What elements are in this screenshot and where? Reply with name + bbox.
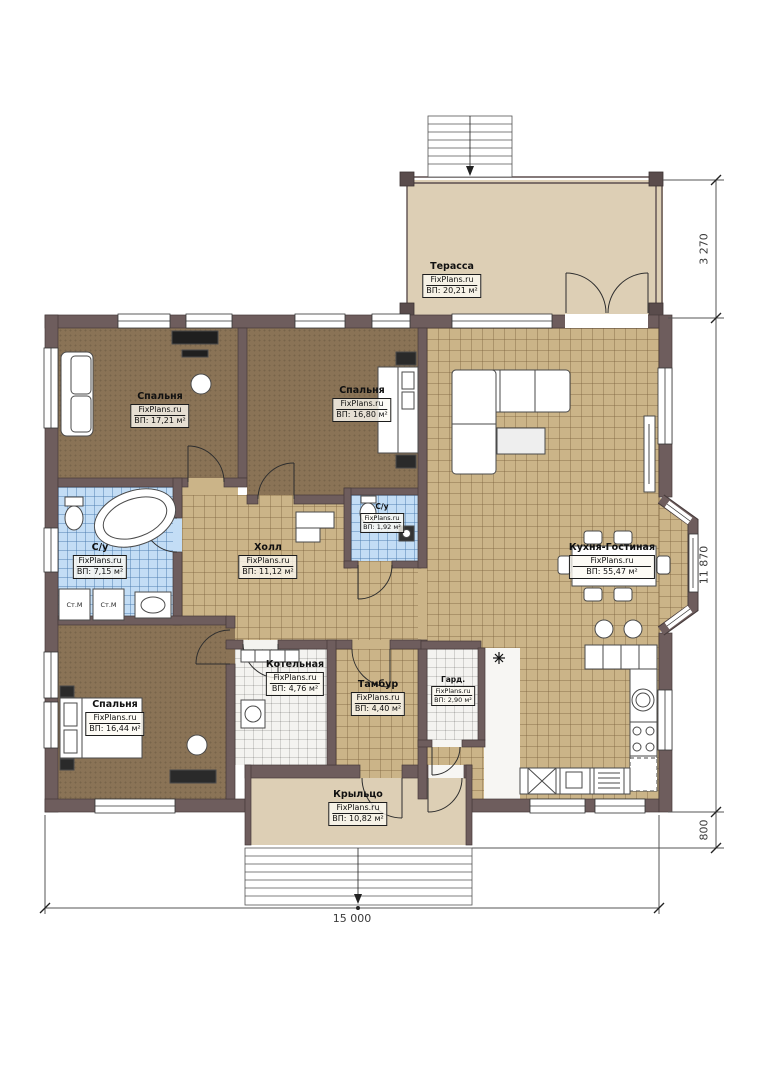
toilet-bathroom	[65, 497, 83, 530]
room-area: ВП: 55,47 м²	[573, 566, 651, 577]
kitchen-counter-top	[585, 645, 657, 669]
dimension-porch-height: 800	[698, 820, 711, 841]
tv-cabinet-living	[644, 416, 655, 492]
hall-cabinet	[296, 512, 334, 542]
snowflake-icon	[493, 652, 505, 664]
bar-stool	[595, 620, 613, 638]
chair-bedroom-bl	[187, 735, 207, 755]
boiler-unit	[241, 700, 265, 728]
nightstand	[60, 686, 74, 697]
porch-stairs	[245, 848, 472, 905]
room-area: ВП: 4,76 м²	[270, 683, 320, 694]
shelf-tl	[182, 350, 208, 357]
room-area: ВП: 7,15 м²	[77, 566, 123, 577]
room-label-kitchen-living: Кухня-Гостиная FixPlans.ru ВП: 55,47 м²	[569, 543, 655, 579]
terrace-stairs	[428, 116, 512, 177]
room-label-bedroom-bl: Спальня FixPlans.ru ВП: 16,44 м²	[85, 700, 144, 736]
room-title: Спальня	[130, 392, 189, 403]
room-title: Холл	[238, 543, 297, 554]
kitchen-counter-right	[630, 669, 657, 791]
dimension-total-width: 15 000	[333, 912, 372, 925]
room-title: С/у	[73, 543, 127, 554]
room-title: Крыльцо	[328, 790, 387, 801]
room-label-hall: Холл FixPlans.ru ВП: 11,12 м²	[238, 543, 297, 579]
nightstand	[60, 759, 74, 770]
washing-machine-label: Ст.М	[93, 589, 124, 620]
nightstand	[396, 352, 416, 365]
room-title: Кухня-Гостиная	[569, 543, 655, 554]
room-area: ВП: 20,21 м²	[426, 285, 477, 296]
brand-label: FixPlans.ru	[77, 556, 123, 566]
room-label-terrace: Терасса FixPlans.ru ВП: 20,21 м²	[422, 262, 481, 298]
dimension-terrace-height: 3 270	[698, 233, 711, 265]
brand-label: FixPlans.ru	[332, 803, 383, 813]
cabinet-sink	[560, 768, 590, 794]
room-title: Котельная	[266, 660, 324, 671]
nightstand	[396, 455, 416, 468]
room-area: ВП: 1,92 м²	[363, 522, 401, 531]
dresser-bl	[170, 770, 216, 783]
brand-label: FixPlans.ru	[355, 693, 401, 703]
room-label-bedroom-tm: Спальня FixPlans.ru ВП: 16,80 м²	[332, 386, 391, 422]
room-title: Спальня	[85, 700, 144, 711]
washing-machine-label: Ст.М	[59, 589, 90, 620]
chair-bedroom-tl	[191, 374, 211, 394]
sink-bathroom	[135, 592, 171, 618]
room-title: Терасса	[422, 262, 481, 273]
room-area: ВП: 2,90 м²	[434, 695, 472, 704]
dishwasher	[594, 768, 624, 794]
bar-stool	[624, 620, 642, 638]
brand-label: FixPlans.ru	[363, 514, 401, 522]
room-title: Гард.	[431, 676, 475, 685]
room-area: ВП: 10,82 м²	[332, 813, 383, 824]
room-area: ВП: 17,21 м²	[134, 415, 185, 426]
room-area: ВП: 11,12 м²	[242, 566, 293, 577]
kitchen-counter-bottom	[520, 768, 630, 794]
sofa-living	[452, 370, 570, 474]
room-label-porch: Крыльцо FixPlans.ru ВП: 10,82 м²	[328, 790, 387, 826]
room-title: С/у	[360, 503, 404, 512]
room-label-bedroom-tl: Спальня FixPlans.ru ВП: 17,21 м²	[130, 392, 189, 428]
room-area: ВП: 4,40 м²	[355, 703, 401, 714]
coffee-table	[497, 428, 545, 454]
sofa-bedroom-tl	[61, 352, 93, 436]
dimension-house-height: 11 870	[698, 546, 711, 585]
tv-cabinet-tl	[172, 331, 218, 344]
brand-label: FixPlans.ru	[426, 275, 477, 285]
room-area: ВП: 16,44 м²	[89, 723, 140, 734]
room-label-wc-small: С/у FixPlans.ru ВП: 1,92 м²	[360, 503, 404, 533]
floor-plan: Терасса FixPlans.ru ВП: 20,21 м² Спальня…	[0, 0, 763, 1080]
brand-label: FixPlans.ru	[573, 556, 651, 566]
brand-label: FixPlans.ru	[270, 673, 320, 683]
stove	[630, 722, 657, 756]
room-title: Тамбур	[351, 680, 405, 691]
room-label-bathroom: С/у FixPlans.ru ВП: 7,15 м²	[73, 543, 127, 579]
plan-graphics	[0, 0, 763, 1080]
fridge	[528, 768, 556, 794]
room-label-boiler: Котельная FixPlans.ru ВП: 4,76 м²	[266, 660, 324, 696]
room-label-tambour: Тамбур FixPlans.ru ВП: 4,40 м²	[351, 680, 405, 716]
room-area: ВП: 16,80 м²	[336, 409, 387, 420]
brand-label: FixPlans.ru	[134, 405, 185, 415]
brand-label: FixPlans.ru	[336, 399, 387, 409]
brand-label: FixPlans.ru	[434, 687, 472, 695]
brand-label: FixPlans.ru	[89, 713, 140, 723]
brand-label: FixPlans.ru	[242, 556, 293, 566]
room-title: Спальня	[332, 386, 391, 397]
room-label-wardrobe: Гард. FixPlans.ru ВП: 2,90 м²	[431, 676, 475, 706]
